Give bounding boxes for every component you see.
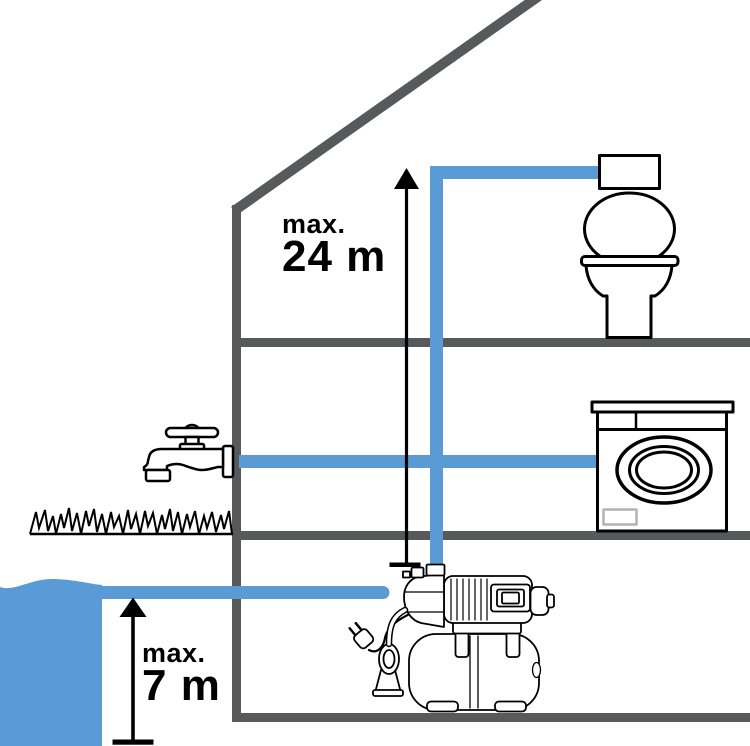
washing-machine — [592, 402, 733, 531]
plug-body — [352, 627, 375, 650]
toilet-cistern — [600, 156, 660, 189]
tap-body — [144, 449, 223, 470]
arrow-delivery-height — [390, 168, 421, 567]
washer-door-inner — [637, 452, 692, 488]
tap-spout — [146, 470, 170, 481]
arrow-delivery-base — [390, 563, 421, 568]
motor-nameplate-inner — [502, 593, 519, 604]
toilet-lid — [585, 193, 675, 265]
arrow-suction-head — [120, 598, 147, 618]
motor-shaft-cap — [547, 595, 554, 608]
toilet-seat — [582, 257, 679, 266]
toilet — [582, 156, 679, 338]
tank-foot-left — [427, 702, 458, 712]
motor-fins — [451, 579, 487, 620]
label-delivery-height: max. 24 m — [282, 212, 386, 274]
tank-foot-right — [495, 702, 526, 712]
garden-tap — [144, 425, 233, 481]
pipe-suction — [102, 586, 390, 599]
pump-head — [404, 574, 444, 628]
washer-kick-plate — [604, 510, 637, 525]
diagram-canvas — [0, 0, 750, 746]
tank-flange-inner — [384, 650, 395, 668]
suction-height-value: 7 m — [142, 669, 221, 703]
head-fitting-left — [412, 568, 424, 578]
tank-port — [533, 663, 541, 678]
pump-mount-base — [373, 690, 403, 696]
power-plug — [347, 621, 375, 650]
delivery-height-value: 24 m — [282, 240, 386, 274]
pipe-top-run — [430, 166, 601, 179]
floor-line-basement — [232, 713, 750, 722]
arrow-delivery-head — [394, 168, 419, 189]
pipe-riser — [430, 166, 443, 573]
pipe-tap-branch — [239, 455, 598, 468]
label-suction-height: max. 7 m — [142, 641, 221, 703]
head-fitting-small — [403, 572, 410, 578]
floor-line-upper — [232, 338, 750, 347]
grass — [30, 508, 233, 534]
toilet-bowl — [586, 266, 672, 338]
pump-installation-diagram: max. 24 m max. 7 m — [0, 0, 750, 746]
motor-end-cap — [531, 587, 549, 615]
water-source — [0, 579, 102, 746]
tap-handle — [166, 428, 218, 437]
arrow-suction-base — [113, 740, 154, 745]
roof — [234, 0, 539, 211]
grass-blades — [30, 508, 232, 534]
head-fitting-outlet — [427, 565, 445, 576]
tap-wall-flange — [223, 446, 233, 477]
